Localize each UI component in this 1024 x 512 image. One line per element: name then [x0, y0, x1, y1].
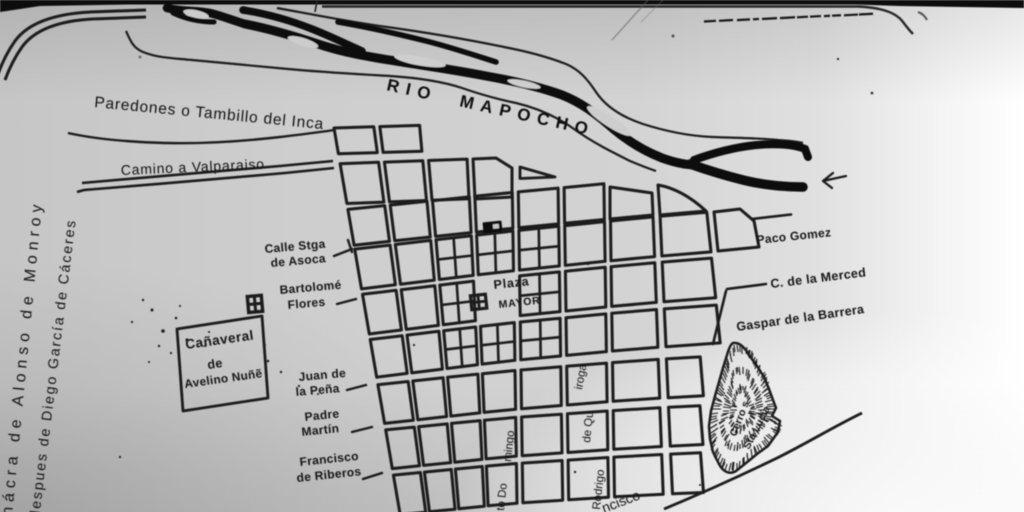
svg-text:de: de [206, 356, 223, 372]
